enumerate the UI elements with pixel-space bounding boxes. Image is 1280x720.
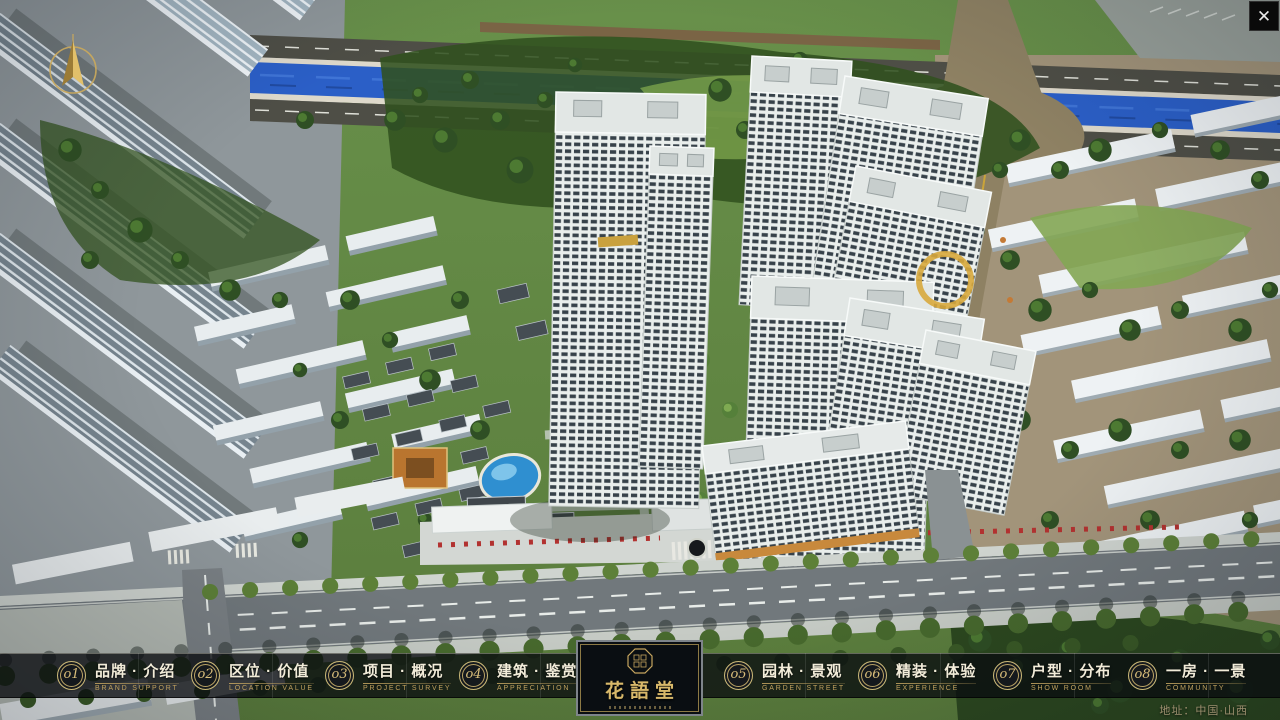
- nav-badge-06: o6: [858, 661, 887, 690]
- nav-item-location[interactable]: o2 区位 · 价值 LOCATION VALUE: [191, 653, 314, 698]
- entrance-tower-slab: [702, 421, 920, 562]
- nav-label-zh: 区位 · 价值: [229, 660, 314, 681]
- nav-item-garden[interactable]: o5 园林 · 景观 GARDEN STREET: [724, 653, 845, 698]
- nav-badge-04: o4: [459, 661, 488, 690]
- nav-badge-01: o1: [57, 661, 86, 690]
- nav-item-community[interactable]: o8 一房 · 一景 COMMUNITY: [1128, 653, 1246, 698]
- map-viewport[interactable]: [0, 0, 1280, 720]
- address-label: 地址：中国·山西: [1159, 702, 1248, 718]
- nav-badge-02: o2: [191, 661, 220, 690]
- logo-subtitle-decor: [609, 706, 671, 709]
- nav-badge-03: o3: [325, 661, 354, 690]
- nav-label-zh: 建筑 · 鉴赏: [497, 660, 577, 681]
- nav-label-en: SHOW ROOM: [1031, 685, 1111, 692]
- nav-badge-08: o8: [1128, 661, 1157, 690]
- nav-label-en: LOCATION VALUE: [229, 685, 314, 692]
- nav-label-zh: 精装 · 体验: [896, 660, 976, 681]
- close-button[interactable]: ✕: [1249, 1, 1279, 31]
- nav-item-floorplan[interactable]: o7 户型 · 分布 SHOW ROOM: [993, 653, 1111, 698]
- nav-label-en: GARDEN STREET: [762, 685, 845, 692]
- logo-title: 花語堂: [599, 676, 680, 703]
- sales-presentation-window: ✕ o1 品牌 · 介绍 BRAND SUPPORT o2 区位 · 价值 LO…: [0, 0, 1280, 720]
- nav-item-project[interactable]: o3 项目 · 概况 PROJECT SURVEY: [325, 653, 451, 698]
- nav-label-en: BRAND SUPPORT: [95, 685, 179, 692]
- brand-logo[interactable]: 花語堂: [576, 640, 703, 716]
- nav-badge-05: o5: [724, 661, 753, 690]
- compass-icon: [40, 28, 106, 104]
- nav-label-zh: 一房 · 一景: [1166, 660, 1246, 681]
- nav-badge-07: o7: [993, 661, 1022, 690]
- nav-item-architecture[interactable]: o4 建筑 · 鉴赏 APPRECIATION: [459, 653, 577, 698]
- nav-item-brand[interactable]: o1 品牌 · 介绍 BRAND SUPPORT: [57, 653, 179, 698]
- nav-label-en: COMMUNITY: [1166, 685, 1246, 692]
- nav-label-en: PROJECT SURVEY: [363, 685, 451, 692]
- nav-label-zh: 户型 · 分布: [1031, 660, 1111, 681]
- nav-label-zh: 项目 · 概况: [363, 660, 451, 681]
- close-icon: ✕: [1257, 8, 1271, 25]
- nav-label-zh: 园林 · 景观: [762, 660, 845, 681]
- nav-item-interior[interactable]: o6 精装 · 体验 EXPERIENCE: [858, 653, 976, 698]
- nav-label-en: EXPERIENCE: [896, 685, 976, 692]
- nav-label-zh: 品牌 · 介绍: [95, 660, 179, 681]
- seal-icon: [627, 648, 653, 674]
- nav-label-en: APPRECIATION: [497, 685, 577, 692]
